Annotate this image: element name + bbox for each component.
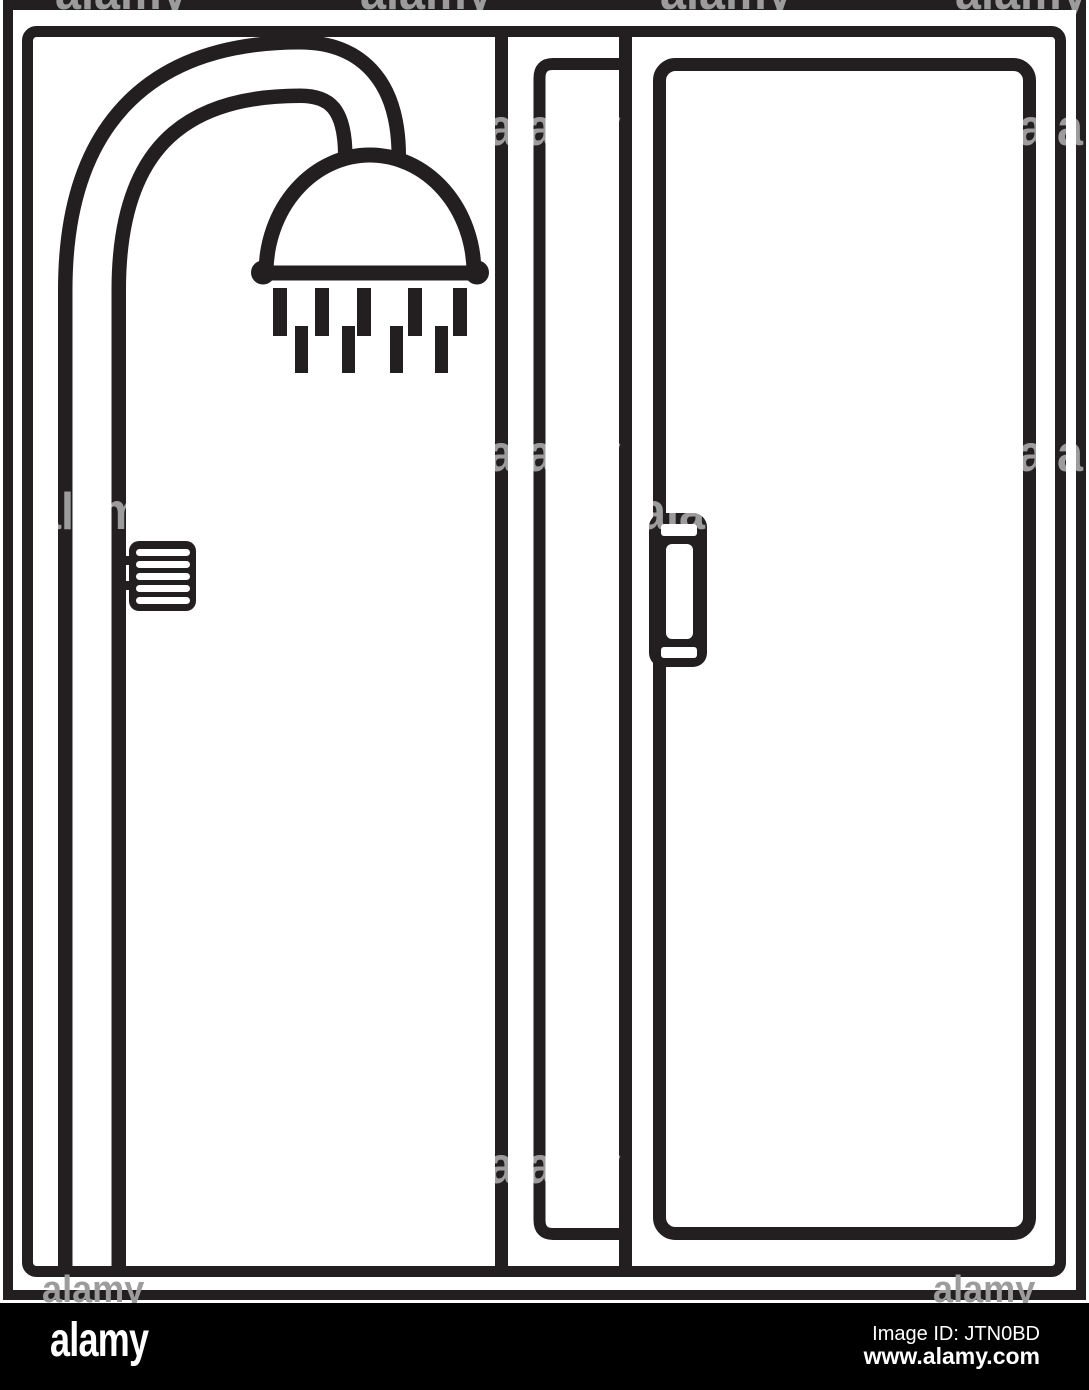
image-id-text: Image ID: JTN0BD bbox=[872, 1324, 1040, 1344]
alamy-logo: alamy bbox=[50, 1317, 148, 1365]
shower-head-icon bbox=[266, 155, 474, 273]
door-handle-icon bbox=[649, 513, 707, 667]
temperature-knob-icon bbox=[120, 541, 196, 611]
shower-cabin-illustration bbox=[0, 0, 1089, 1390]
water-drops-icon bbox=[273, 288, 467, 373]
door-frame bbox=[660, 65, 1030, 1234]
website-link[interactable]: www.alamy.com bbox=[864, 1345, 1040, 1368]
stock-photo-page: alamyalamyalamyalamyalamyalamyalamyalamy… bbox=[0, 0, 1089, 1390]
glass-panel-icon bbox=[540, 64, 633, 1234]
shower-head-cap-right bbox=[465, 261, 489, 285]
shower-head-cap-left bbox=[251, 261, 275, 285]
